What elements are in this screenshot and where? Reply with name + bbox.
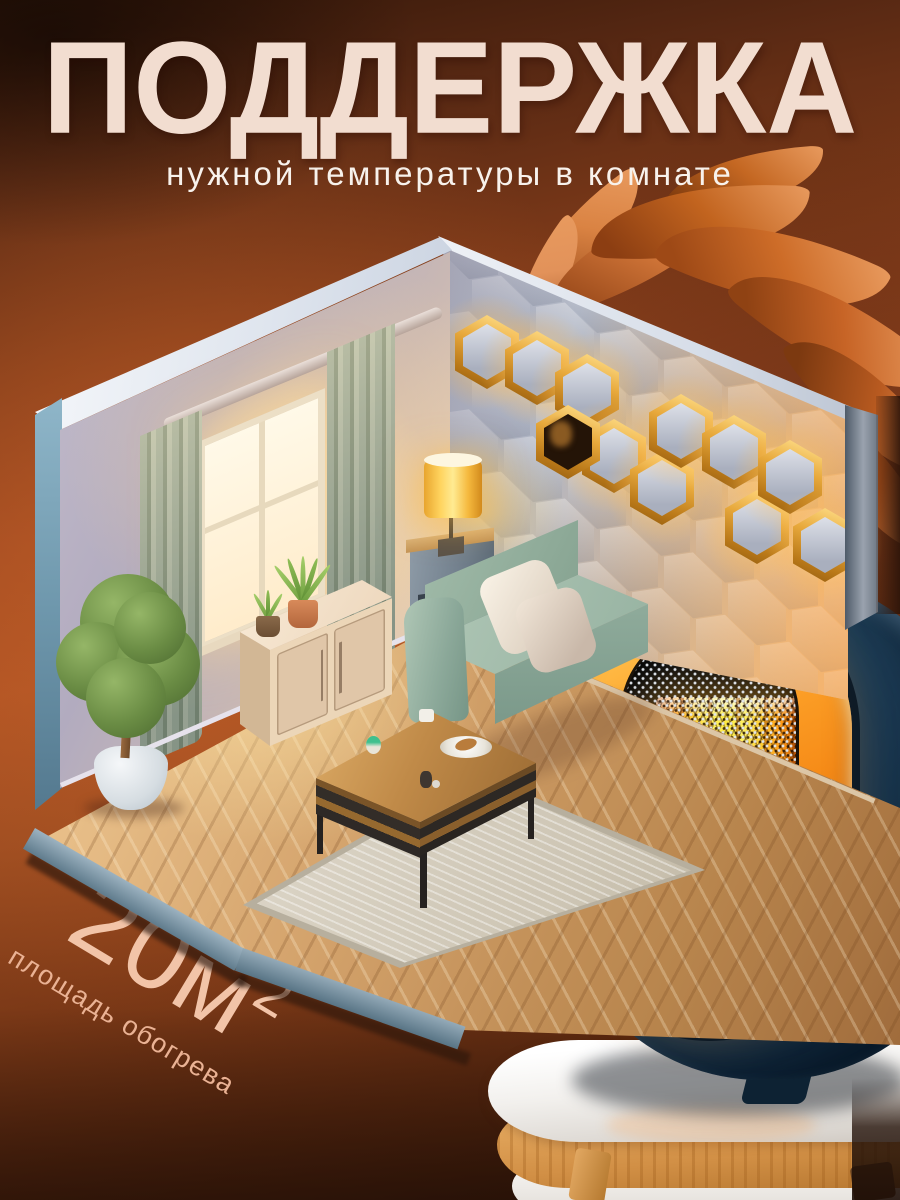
marketing-banner: ПОДДЕРЖКА нужной температуры в комнате [0,0,900,1200]
teddy-bear [550,421,572,447]
decor-egg [366,736,381,754]
headline: ПОДДЕРЖКА [0,21,900,155]
lamp-shade-top [424,453,482,467]
wall-light-ball [774,462,805,493]
cup [419,709,434,722]
headline-block: ПОДДЕРЖКА нужной температуры в комнате [0,24,900,193]
wall-cut-edge [35,396,62,810]
wall-end-edge [845,405,878,630]
lamp-shade [424,460,482,518]
wall-hex-tile [856,621,900,711]
terracotta-pot [288,600,318,628]
wall-hex-tile [888,683,900,773]
coffee-table-leg [420,850,427,908]
lamp-base [438,536,464,557]
grass-plant [286,556,320,602]
cabinet-door [334,608,385,712]
background-shadow-strip [876,396,900,614]
cabinet-handle [339,641,342,693]
small-decor [432,780,440,788]
cabinet-door [277,632,328,736]
small-pot [256,616,280,637]
wall-light-ball [809,530,840,561]
small-plant [256,588,280,618]
tree-foliage-ball [86,658,166,738]
sofa-armrest [403,597,469,724]
tv-cabinet-side [240,632,270,746]
figurine [420,771,432,788]
cabinet-handle [321,649,324,701]
tree-foliage-ball [114,592,186,664]
